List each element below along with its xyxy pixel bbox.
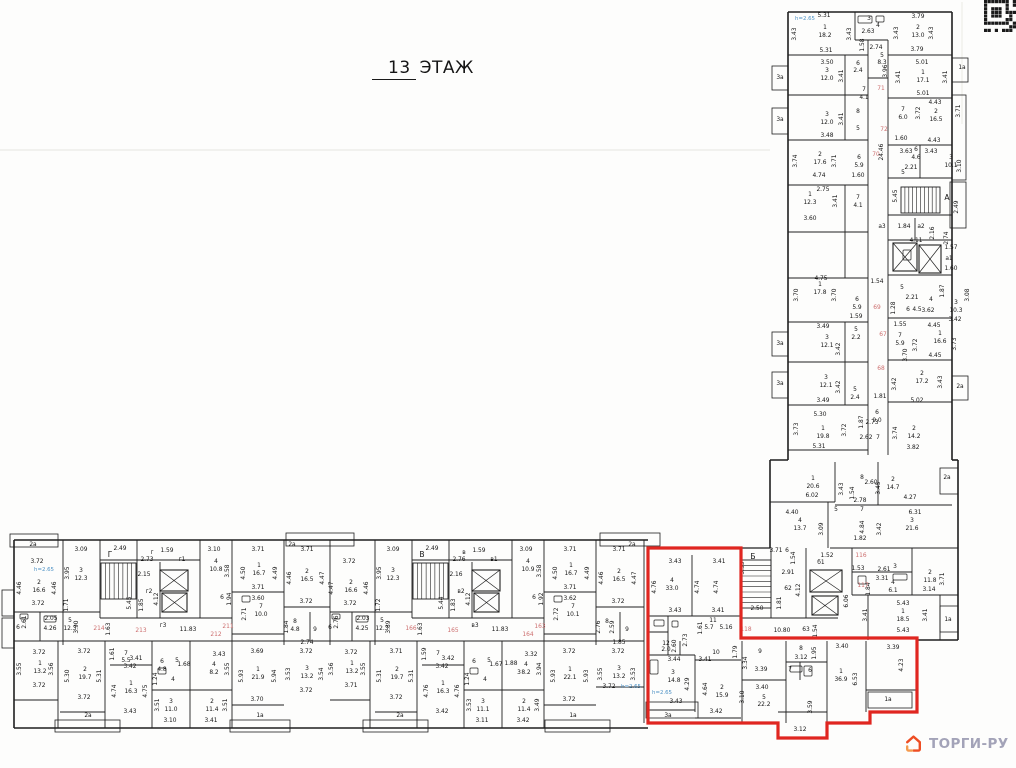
qr-module — [998, 22, 1001, 25]
dimension-label: 4.46 — [52, 581, 58, 594]
dimension-label: 4 — [929, 297, 933, 303]
balcony-outline — [55, 720, 120, 732]
dimension-label: 1.63 — [418, 622, 424, 635]
dimension-label: 3.53 — [286, 667, 292, 680]
qr-module — [1002, 0, 1005, 3]
dimension-label: 8 — [799, 646, 803, 652]
dimension-label: 3.11 — [475, 718, 488, 724]
qr-module — [988, 29, 991, 32]
dimension-label: 2.15 — [137, 572, 150, 578]
dimension-label: 3.72 — [77, 695, 90, 701]
dimension-label: 16.3 — [124, 689, 137, 695]
dimension-label: 4.12 — [154, 592, 160, 605]
dimension-label: 2а — [396, 713, 404, 719]
dimension-label: 3.95 — [65, 566, 71, 579]
unit-number-label: 213 — [135, 628, 146, 634]
qr-module — [991, 14, 994, 17]
dimension-label: 17.1 — [916, 78, 929, 84]
dimension-label: 4.12 — [796, 583, 802, 596]
qr-module — [1009, 25, 1012, 28]
dimension-label: 4.76 — [652, 580, 658, 593]
dimension-label: 3.43 — [668, 608, 681, 614]
dimension-label: 3.41 — [712, 559, 725, 565]
dimension-label: 2.63 — [861, 29, 874, 35]
dimension-label: 2 — [916, 25, 920, 31]
dimension-label: 5.93 — [239, 669, 245, 682]
dimension-label: 3.09 — [519, 547, 532, 553]
dimension-label: 3.42 — [435, 709, 448, 715]
dimension-label: 3.41 — [698, 657, 711, 663]
dimension-label: 3.69 — [250, 649, 263, 655]
dimension-label: 3.43 — [669, 699, 682, 705]
dimension-label: 4.84 — [860, 520, 866, 533]
dimension-label: 7 — [860, 507, 864, 513]
dimension-label: 2.75 — [816, 187, 829, 193]
dimension-label: 3.41 — [943, 70, 949, 83]
dimension-label: А — [944, 193, 950, 202]
qr-module — [984, 22, 987, 25]
dimension-label: 2.0 — [661, 647, 671, 653]
dimension-label: 3.39 — [886, 645, 899, 651]
dimension-label: 4.64 — [703, 682, 709, 695]
balcony-outline — [940, 468, 958, 494]
dimension-label: 3.53 — [467, 698, 473, 711]
dimension-label: 5.30 — [813, 412, 826, 418]
dimension-label: 3.43 — [938, 375, 944, 388]
unit-number-label: 67 — [879, 332, 887, 338]
qr-module — [995, 14, 998, 17]
dimension-label: 3 — [825, 335, 829, 341]
dimension-label: г2 — [146, 589, 153, 595]
dimension-label: а1 — [945, 256, 953, 262]
dimension-label: 4.26 — [43, 626, 56, 632]
dimension-label: 3.42 — [836, 380, 842, 393]
dimension-label: 2а — [288, 542, 296, 548]
dimension-label: 8 — [856, 109, 860, 115]
dimension-label: 2.73 — [140, 557, 153, 563]
dimension-label: 11.1 — [476, 707, 489, 713]
dimension-label: 5.94 — [272, 669, 278, 682]
dimension-label: 2.72 — [554, 607, 560, 620]
dimension-label: 18.5 — [896, 617, 909, 623]
dimension-label: 1 — [921, 70, 925, 76]
qr-module — [1006, 4, 1009, 7]
dimension-label: 2 — [37, 580, 41, 586]
dimension-label: 6 — [785, 548, 789, 554]
dimension-label: 24.46 — [879, 143, 885, 160]
dimension-label: 3.72 — [299, 688, 312, 694]
torgi-ru-logo: ТОРГИ-РУ — [903, 733, 1009, 754]
dimension-label: 4.46 — [599, 571, 605, 584]
dimension-label: 2 — [928, 570, 932, 576]
dimension-label: 4.8 — [157, 667, 167, 673]
dimension-label: 1 — [350, 661, 354, 667]
dimension-label: 3.41 — [896, 70, 902, 83]
dimension-label: 3.10 — [740, 690, 746, 703]
dimension-label: 3.60 — [803, 216, 816, 222]
dimension-label: 2 — [210, 699, 214, 705]
dimension-label: 1.92 — [539, 592, 545, 605]
dimension-label: 1 — [821, 426, 825, 432]
dimension-label: 1.61 — [110, 647, 116, 660]
dimension-label: 2.91 — [781, 570, 794, 576]
dimension-label: 3.71 — [832, 154, 838, 167]
dimension-label: 2.60 — [672, 639, 678, 652]
dimension-label: 1.54 — [870, 279, 883, 285]
dimension-label: 3.71 — [563, 585, 576, 591]
dimension-label: 3.42 — [516, 718, 529, 724]
dimension-label: 6 — [856, 61, 860, 67]
dimension-label: 5 — [880, 53, 884, 59]
dimension-label: 2.76 — [452, 557, 465, 563]
dimension-label: 4.75 — [814, 276, 827, 282]
unit-number-label: 166 — [405, 626, 416, 632]
floor-plan-svg: 2а3.72h=2.65216.64.464.463.723.09312.33.… — [0, 0, 1016, 768]
qr-module — [1009, 29, 1012, 32]
dimension-label: в3 — [471, 623, 478, 629]
dimension-label: 2.50 — [750, 606, 763, 612]
dimension-label: 16.3 — [436, 689, 449, 695]
dimension-label: 1.52 — [820, 553, 833, 559]
dimension-label: 1 — [441, 681, 445, 687]
dimension-label: 16.6 — [933, 339, 946, 345]
dimension-label: 20.6 — [806, 484, 819, 490]
dimension-label: 1.60 — [851, 173, 864, 179]
qr-module — [991, 11, 994, 14]
dimension-label: 5.01 — [915, 60, 928, 66]
dimension-label: 2.74 — [944, 231, 950, 244]
dimension-label: 3.09 — [819, 522, 825, 535]
dimension-label: 4.74 — [714, 580, 720, 593]
dimension-label: 3.42 — [948, 317, 961, 323]
dimension-label: 1.59 — [472, 548, 485, 554]
dimension-label: 5.01 — [916, 91, 929, 97]
dimension-label: 2 — [522, 699, 526, 705]
dimension-label: 9 — [313, 627, 317, 633]
dimension-label: 2а — [956, 384, 964, 390]
dimension-label: 1.81 — [873, 394, 886, 400]
dimension-label: 3.44 — [667, 657, 680, 663]
dimension-label: 11.83 — [492, 627, 509, 633]
dimension-label: 2.4 — [853, 68, 863, 74]
dimension-label: 11.0 — [164, 707, 177, 713]
unit-number-label: 116 — [855, 553, 866, 559]
dimension-label: 8 — [605, 619, 609, 625]
dimension-label: 4 — [798, 518, 802, 524]
ceiling-height-label: h=2.65 — [621, 684, 641, 690]
dimension-label: 3.32 — [524, 652, 537, 658]
dimension-label: 4.46 — [287, 571, 293, 584]
qr-module — [998, 0, 1001, 3]
dimension-label: 11.4 — [205, 707, 218, 713]
dimension-label: 7 — [436, 651, 440, 657]
dimension-label: 63 — [802, 627, 810, 633]
dimension-label: 1.24 — [153, 672, 159, 685]
dimension-label: 3.63 — [899, 149, 912, 155]
qr-module — [991, 7, 994, 10]
dimension-label: 5.43 — [896, 601, 909, 607]
dimension-label: 10.0 — [254, 612, 267, 618]
dimension-label: 1.63 — [106, 622, 112, 635]
dimension-label: 16.6 — [32, 588, 45, 594]
dimension-label: 3.79 — [910, 47, 923, 53]
dimension-label: 1.82 — [853, 536, 866, 542]
dimension-label: 1.85 — [139, 598, 145, 611]
qr-module — [984, 14, 987, 17]
dimension-label: 1 — [38, 661, 42, 667]
dimension-label: 3.71 — [251, 585, 264, 591]
dimension-label: г — [150, 550, 153, 556]
ceiling-height-label: h=2.65 — [34, 567, 54, 573]
dimension-label: 14.7 — [886, 485, 899, 491]
unit-number-label: 71 — [877, 86, 885, 92]
dimension-label: 11 — [709, 618, 717, 624]
dimension-label: 2.16 — [930, 226, 936, 239]
dimension-label: 8.2 — [209, 670, 219, 676]
dimension-label: 5.43 — [896, 628, 909, 634]
balcony-outline — [545, 720, 610, 732]
dimension-label: 6 — [472, 659, 476, 665]
qr-module — [1006, 22, 1009, 25]
dimension-label: 3.09 — [386, 547, 399, 553]
dimension-label: 3.50 — [820, 60, 833, 66]
dimension-label: 6.02 — [805, 493, 818, 499]
dimension-label: 4 — [876, 23, 880, 29]
dimension-label: 4.46 — [364, 581, 370, 594]
dimension-label: 3.43 — [847, 27, 853, 40]
dimension-label: 2.2 — [851, 335, 861, 341]
dimension-label: 3.40 — [835, 644, 848, 650]
dimension-label: г3 — [160, 623, 167, 629]
dimension-label: 4.46 — [17, 581, 23, 594]
dimension-label: 5.31 — [409, 669, 415, 682]
qr-module — [1002, 22, 1005, 25]
dimension-label: 2.73 — [865, 420, 878, 426]
dimension-label: 3.72 — [344, 650, 357, 656]
dimension-label: 3.41 — [839, 112, 845, 125]
dimension-label: а2 — [917, 224, 925, 230]
dimension-label: 4 — [483, 677, 487, 683]
dimension-label: 21.9 — [251, 675, 264, 681]
dimension-label: 2.4 — [850, 395, 860, 401]
dimension-label: 3а — [664, 713, 672, 719]
dimension-label: 3.70 — [250, 697, 263, 703]
dimension-label: 1 — [568, 667, 572, 673]
dimension-label: 3.71 — [563, 547, 576, 553]
dimension-label: 5.44 — [439, 596, 445, 609]
unit-number-label: 211 — [222, 624, 233, 630]
dimension-label: 3.72 — [32, 650, 45, 656]
dimension-label: 3 — [825, 68, 829, 74]
dimension-label: 1.55 — [893, 322, 906, 328]
dimension-label: 3.72 — [611, 599, 624, 605]
dimension-label: 3.42 — [892, 377, 898, 390]
dimension-label: 3.51 — [223, 698, 229, 711]
dimension-label: 3.95 — [377, 566, 383, 579]
dimension-label: 1 — [823, 25, 827, 31]
dimension-label: 1.87 — [859, 415, 865, 428]
dimension-label: 3.72 — [842, 423, 848, 436]
dimension-label: 2.61 — [22, 615, 28, 628]
dimension-label: 2.49 — [425, 546, 438, 552]
dimension-label: 8 — [293, 619, 297, 625]
dimension-label: 6 — [808, 668, 812, 674]
dimension-label: 1.28 — [891, 301, 897, 314]
dimension-label: 4.75 — [143, 684, 149, 697]
dimension-label: 4.27 — [903, 495, 916, 501]
dimension-label: 6 — [220, 595, 224, 601]
dimension-label: 2 — [395, 667, 399, 673]
dimension-label: 22.2 — [757, 702, 770, 708]
qr-module — [998, 11, 1001, 14]
dimension-label: 21.6 — [905, 526, 918, 532]
dimension-label: 1а — [884, 697, 892, 703]
dimension-label: 1а — [569, 713, 577, 719]
balcony-outline — [363, 720, 428, 732]
dimension-label: 1.87 — [940, 284, 946, 297]
dimension-label: 2 — [912, 426, 916, 432]
dimension-label: 1.94 — [227, 592, 233, 605]
dimension-label: 3.72 — [562, 649, 575, 655]
dimension-label: 5.45 — [893, 189, 899, 202]
dimension-label: 2.76 — [596, 620, 602, 633]
dimension-label: 12.3 — [803, 200, 816, 206]
dimension-label: 3.43 — [924, 149, 937, 155]
dimension-label: 1 — [811, 476, 815, 482]
dimension-label: 3 — [671, 670, 675, 676]
dimension-label: 3.31 — [875, 576, 888, 582]
dimension-label: 2.74 — [300, 640, 313, 646]
dimension-label: 5 — [856, 126, 860, 132]
dimension-label: 5 — [762, 695, 766, 701]
dimension-label: 3.79 — [911, 14, 924, 20]
dimension-label: 10.9 — [521, 567, 534, 573]
dimension-label: 2.61 — [877, 567, 890, 573]
dimension-label: 15.9 — [715, 693, 728, 699]
dimension-label: 10 — [712, 650, 720, 656]
dimension-label: 2 — [818, 152, 822, 158]
dimension-label: 5.31 — [377, 669, 383, 682]
dimension-label: 3.71 — [344, 683, 357, 689]
dimension-label: 3 — [391, 568, 395, 574]
dimension-label: 4.1 — [853, 203, 863, 209]
dimension-label: 1.95 — [812, 646, 818, 659]
dimension-label: 3.55 — [598, 667, 604, 680]
bath-fixture — [470, 668, 478, 674]
dimension-label: 3.40 — [755, 685, 768, 691]
dimension-label: 17.2 — [915, 379, 928, 385]
dimension-label: 36.9 — [834, 677, 847, 683]
dimension-label: 10.8 — [209, 567, 222, 573]
dimension-label: 4.50 — [241, 566, 247, 579]
dimension-label: 5.31 — [97, 669, 103, 682]
ceiling-height-label: h=2.65 — [652, 690, 672, 696]
dimension-label: 5 — [853, 387, 857, 393]
dimension-label: 5.31 — [812, 444, 825, 450]
dimension-label: 3.54 — [319, 667, 325, 680]
dimension-label: 3 — [517, 670, 521, 676]
qr-module — [1009, 18, 1012, 21]
qr-module — [1006, 29, 1009, 32]
dimension-label: 3.94 — [537, 662, 543, 675]
bath-fixture — [650, 660, 658, 674]
dimension-label: 16.7 — [564, 571, 577, 577]
dimension-label: 3.41 — [711, 608, 724, 614]
dimension-label: 4 — [214, 559, 218, 565]
dimension-label: 1.60 — [944, 266, 957, 272]
dimension-label: 12.0 — [820, 76, 833, 82]
dimension-label: 6 — [875, 410, 879, 416]
dimension-label: 3.89 — [386, 620, 392, 633]
dimension-label: 4.25 — [355, 626, 368, 632]
dimension-label: 1 — [569, 563, 573, 569]
dimension-label: 10.80 — [774, 628, 791, 634]
balcony-outline — [2, 618, 14, 648]
dimension-label: 6 — [906, 307, 910, 313]
dimension-label: 6 — [857, 155, 861, 161]
ceiling-height-label: h=2.65 — [795, 16, 815, 22]
dimension-label: 11.83 — [180, 627, 197, 633]
dimension-label: 3.71 — [612, 547, 625, 553]
dimension-label: 5 — [854, 327, 858, 333]
dimension-label: 1.59 — [849, 314, 862, 320]
dimension-label: 3.42 — [709, 709, 722, 715]
dimension-label: 11.8 — [923, 578, 936, 584]
dimension-label: в2 — [457, 589, 464, 595]
dimension-label: 3.43 — [792, 27, 798, 40]
dimension-label: 6 — [328, 625, 332, 631]
dimension-label: 22.1 — [563, 675, 576, 681]
dimension-label: 2.16 — [449, 572, 462, 578]
dimension-label: 10.1 — [566, 612, 579, 618]
dimension-label: 1.72 — [376, 598, 382, 611]
dimension-label: 1 — [257, 563, 261, 569]
dimension-label: 4.43 — [928, 100, 941, 106]
dimension-label: 2 — [617, 569, 621, 575]
dimension-label: 5 — [901, 170, 905, 176]
dimension-label: 4.12 — [466, 592, 472, 605]
qr-code — [984, 0, 1016, 34]
dimension-label: 1.88 — [504, 661, 517, 667]
dimension-label: 3а — [776, 117, 784, 123]
dimension-label: 3.59 — [808, 700, 814, 713]
dimension-label: 8.2 — [521, 670, 531, 676]
dimension-label: 1.71 — [64, 598, 70, 611]
dimension-label: а3 — [878, 224, 886, 230]
dimension-label: 3.55 — [225, 662, 231, 675]
dimension-label: 2 — [305, 569, 309, 575]
dimension-label: 3.90 — [74, 620, 80, 633]
dimension-label: 9 — [758, 649, 762, 655]
dimension-label: 5.45 — [127, 596, 133, 609]
balcony-outline — [2, 590, 14, 616]
dimension-label: 3.72 — [299, 599, 312, 605]
dimension-label: 3.14 — [922, 587, 935, 593]
dimension-label: 2а — [84, 713, 92, 719]
dimension-label: 3.72 — [913, 338, 919, 351]
dimension-label: 2 — [891, 477, 895, 483]
dimension-label: 3.58 — [225, 564, 231, 577]
dimension-label: 3.72 — [343, 601, 356, 607]
dimension-label: 33.0 — [665, 586, 678, 592]
dimension-label: 4.74 — [695, 580, 701, 593]
dimension-label: 3.70 — [903, 348, 909, 361]
dimension-label: 1.54 — [813, 624, 819, 637]
dimension-label: 19.7 — [390, 675, 403, 681]
dimension-label: 5.30 — [65, 669, 71, 682]
bath-fixture — [554, 596, 562, 602]
dimension-label: 2.21 — [904, 165, 917, 171]
